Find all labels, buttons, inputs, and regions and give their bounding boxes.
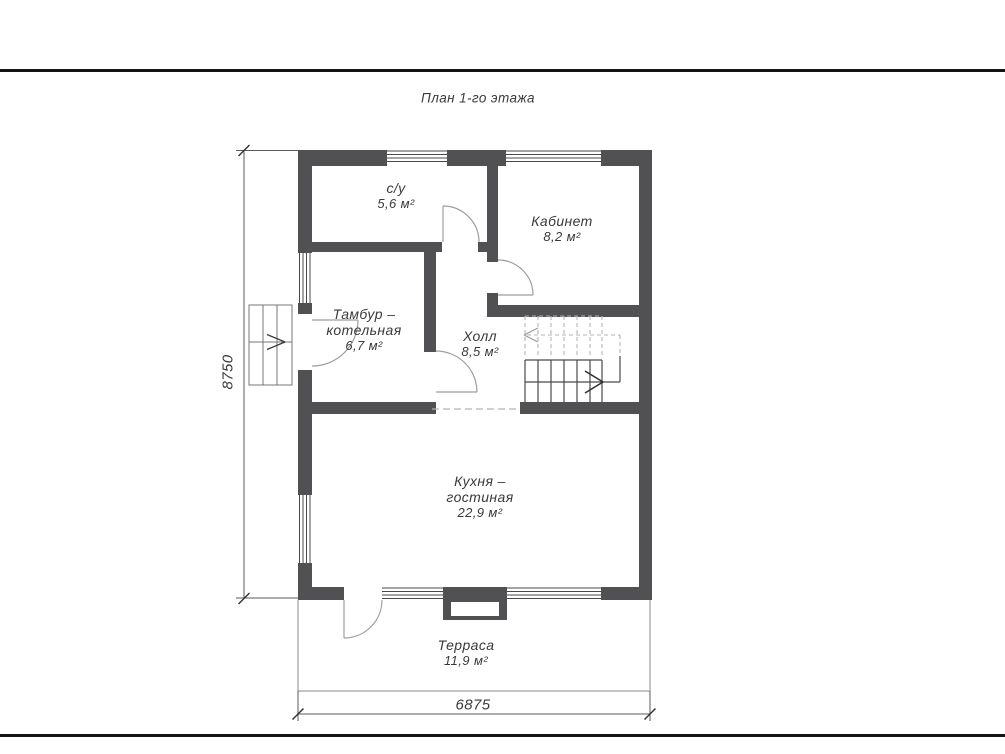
staircase bbox=[524, 316, 620, 402]
chimney-block bbox=[443, 588, 507, 620]
interior-walls bbox=[298, 166, 652, 414]
wall-right bbox=[639, 150, 652, 600]
terrace-door bbox=[344, 600, 382, 638]
drawing-title: План 1-го этажа bbox=[421, 91, 535, 106]
wall-below-tambur bbox=[298, 402, 436, 414]
room-name-line2: гостиная bbox=[446, 489, 513, 505]
room-area: 8,5 м² bbox=[461, 344, 498, 360]
kabinet-door bbox=[498, 260, 533, 295]
room-name-line2: котельная bbox=[326, 322, 401, 338]
dimension-value-width: 6875 bbox=[456, 697, 491, 714]
drawing-sheet: План 1-го этажа с/у 5,6 м² Кабинет 8,2 м… bbox=[0, 0, 1005, 754]
wall-su-kabinet-divider bbox=[487, 166, 498, 262]
room-label-kitchen: Кухня – гостиная 22,9 м² bbox=[446, 473, 513, 521]
porch-steps bbox=[249, 305, 292, 385]
dimension-left bbox=[236, 145, 298, 604]
top-window-su bbox=[387, 150, 447, 166]
terrace-door-opening bbox=[344, 587, 382, 600]
room-area: 11,9 м² bbox=[438, 653, 495, 669]
room-name: Тамбур – bbox=[326, 306, 401, 322]
left-window-kitchen bbox=[298, 495, 312, 563]
bottom-window-left bbox=[382, 587, 443, 600]
entrance-opening bbox=[298, 314, 312, 370]
room-label-holl: Холл 8,5 м² bbox=[461, 328, 498, 360]
room-name: Кухня – bbox=[446, 473, 513, 489]
room-name: с/у bbox=[377, 180, 414, 196]
room-area: 22,9 м² bbox=[446, 505, 513, 521]
dimension-value-height: 8750 bbox=[220, 355, 237, 390]
room-label-su: с/у 5,6 м² bbox=[377, 180, 414, 212]
room-name: Холл bbox=[461, 328, 498, 344]
left-window-tambur bbox=[298, 253, 312, 303]
stairs-upper-flight-dashed bbox=[525, 316, 620, 357]
doors bbox=[312, 206, 533, 638]
floor-plan-drawing bbox=[0, 0, 1005, 754]
room-name: Терраса bbox=[438, 637, 495, 653]
wall-kabinet-door-stub bbox=[487, 293, 498, 307]
room-name: Кабинет bbox=[531, 213, 593, 229]
wall-below-su bbox=[312, 242, 442, 252]
room-area: 6,7 м² bbox=[326, 338, 401, 354]
wall-below-kabinet bbox=[487, 305, 652, 317]
stairs-lower-flight bbox=[525, 356, 620, 402]
room-label-terrace: Терраса 11,9 м² bbox=[438, 637, 495, 669]
wall-tambur-right bbox=[424, 242, 436, 352]
room-area: 5,6 м² bbox=[377, 196, 414, 212]
wall-below-stairs bbox=[520, 402, 652, 414]
outer-walls bbox=[298, 150, 652, 600]
su-door bbox=[443, 206, 479, 242]
room-area: 8,2 м² bbox=[531, 229, 593, 245]
bottom-window-right bbox=[507, 587, 601, 600]
room-label-kabinet: Кабинет 8,2 м² bbox=[531, 213, 593, 245]
top-window-kabinet bbox=[506, 150, 601, 166]
room-label-tambur: Тамбур – котельная 6,7 м² bbox=[326, 306, 401, 354]
